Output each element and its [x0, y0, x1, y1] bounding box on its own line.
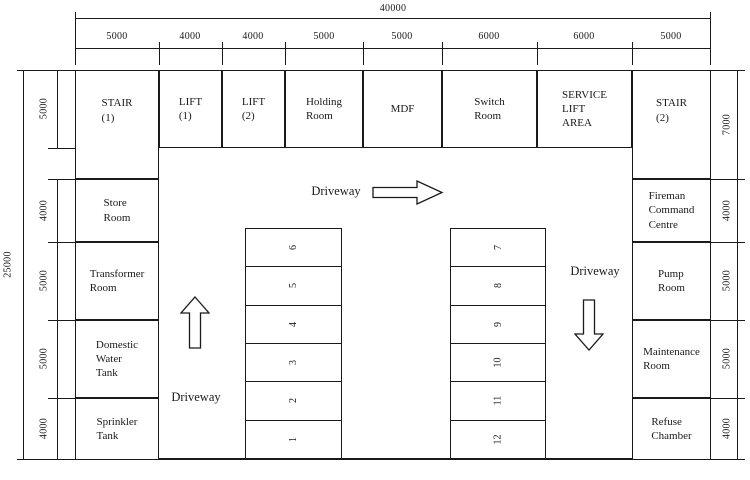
- dim-label-left-1: 5000: [39, 87, 52, 131]
- dim-label-top-1: 5000: [97, 31, 137, 42]
- stall-number: 5: [288, 283, 299, 288]
- dim-tick: [537, 42, 538, 65]
- room-holding: Holding Room: [285, 70, 363, 148]
- dim-tick: [711, 459, 745, 460]
- dim-tick: [75, 12, 76, 65]
- dim-label-right-2: 4000: [722, 189, 735, 233]
- dim-overall-height: 25000: [3, 243, 16, 287]
- dim-tick: [711, 179, 745, 180]
- dim-tick: [285, 42, 286, 65]
- dim-line-left-segments: [57, 70, 58, 148]
- dim-label-left-4: 5000: [39, 337, 52, 381]
- parking-stall-10: 10: [451, 344, 545, 382]
- room-label: Switch Room: [474, 95, 505, 124]
- dim-tick: [48, 320, 77, 321]
- dim-label-top-5: 5000: [382, 31, 422, 42]
- room-lift-1: LIFT (1): [159, 70, 222, 148]
- room-service-lift-area: SERVICE LIFT AREA: [537, 70, 632, 148]
- dim-tick: [17, 459, 77, 460]
- stall-number: 9: [493, 322, 504, 327]
- room-mdf: MDF: [363, 70, 442, 148]
- room-switch: Switch Room: [442, 70, 537, 148]
- driveway-arrow-up-icon: [180, 296, 210, 349]
- dim-tick: [48, 242, 77, 243]
- parking-stall-7: 7: [451, 229, 545, 267]
- dim-label-left-3: 5000: [39, 259, 52, 303]
- dim-label-left-5: 4000: [39, 407, 52, 451]
- dim-tick: [711, 320, 745, 321]
- room-stair-1: STAIR (1): [75, 70, 159, 179]
- room-label: SERVICE LIFT AREA: [562, 88, 607, 131]
- stall-number: 7: [493, 245, 504, 250]
- driveway-label-left: Driveway: [165, 390, 227, 405]
- parking-stall-6: 6: [246, 229, 341, 267]
- room-lift-2: LIFT (2): [222, 70, 285, 148]
- dim-tick: [442, 42, 443, 65]
- dim-line-overall-left: [23, 70, 24, 460]
- room-refuse-chamber: Refuse Chamber: [632, 398, 711, 460]
- dim-overall-width: 40000: [363, 3, 423, 14]
- driveway-arrow-right-icon: [372, 180, 444, 205]
- floor-plan: 40000 5000 4000 4000 5000 5000 6000 6000…: [0, 0, 750, 480]
- dim-label-left-2: 4000: [39, 189, 52, 233]
- stall-number: 1: [288, 437, 299, 442]
- stall-number: 12: [493, 434, 504, 444]
- room-stair-2: STAIR (2): [632, 70, 711, 179]
- dim-label-top-2: 4000: [170, 31, 210, 42]
- stall-number: 3: [288, 360, 299, 365]
- room-label: LIFT (2): [242, 95, 265, 124]
- dim-label-top-6: 6000: [469, 31, 509, 42]
- room-fireman-command-centre: Fireman Command Centre: [632, 179, 711, 242]
- room-label: STAIR (2): [656, 96, 687, 125]
- room-label: Fireman Command Centre: [649, 189, 695, 232]
- parking-stall-5: 5: [246, 267, 341, 305]
- dim-tick: [159, 42, 160, 65]
- room-label: STAIR (1): [102, 96, 133, 125]
- dim-label-top-4: 5000: [304, 31, 344, 42]
- room-sprinkler-tank: Sprinkler Tank: [75, 398, 159, 460]
- dim-label-right-1: 7000: [722, 103, 735, 147]
- dim-line-overall-top: [75, 18, 711, 19]
- stall-number: 6: [288, 245, 299, 250]
- dim-tick: [363, 42, 364, 65]
- driveway-label-right: Driveway: [564, 264, 626, 279]
- room-store: Store Room: [75, 179, 159, 242]
- stall-number: 4: [288, 322, 299, 327]
- dim-label-top-8: 5000: [651, 31, 691, 42]
- room-transformer: Transformer Room: [75, 242, 159, 320]
- parking-stall-4: 4: [246, 306, 341, 344]
- parking-stall-1: 1: [246, 421, 341, 458]
- parking-stall-8: 8: [451, 267, 545, 305]
- parking-stall-3: 3: [246, 344, 341, 382]
- stall-number: 2: [288, 398, 299, 403]
- dim-tick: [711, 242, 745, 243]
- room-pump: Pump Room: [632, 242, 711, 320]
- room-label: Domestic Water Tank: [96, 338, 138, 381]
- stall-number: 11: [492, 396, 503, 406]
- dim-tick: [711, 70, 745, 71]
- dim-tick: [632, 42, 633, 65]
- stall-number: 8: [493, 283, 504, 288]
- dim-tick: [48, 398, 77, 399]
- dim-tick: [48, 179, 77, 180]
- driveway-label-top: Driveway: [305, 184, 367, 199]
- room-maintenance: Maintenance Room: [632, 320, 711, 398]
- parking-block-left: 6 5 4 3 2 1: [245, 228, 342, 459]
- dim-label-right-3: 5000: [722, 259, 735, 303]
- room-domestic-water-tank: Domestic Water Tank: [75, 320, 159, 398]
- room-label: Refuse Chamber: [651, 415, 691, 444]
- dim-label-top-7: 6000: [564, 31, 604, 42]
- dim-tick: [48, 148, 77, 149]
- room-label: Maintenance Room: [643, 345, 700, 374]
- dim-line-right-segments: [737, 70, 738, 460]
- dim-tick: [17, 70, 77, 71]
- stall-number: 10: [493, 358, 504, 368]
- dim-tick: [710, 12, 711, 65]
- dim-label-top-3: 4000: [233, 31, 273, 42]
- dim-label-right-4: 5000: [722, 337, 735, 381]
- room-label: MDF: [391, 102, 415, 116]
- room-label: Holding Room: [306, 95, 342, 124]
- room-label: Sprinkler Tank: [97, 415, 138, 444]
- room-label: Store Room: [104, 196, 131, 225]
- parking-stall-11: 11: [451, 382, 545, 420]
- dim-line-top-segments: [75, 48, 711, 49]
- dim-label-right-5: 4000: [722, 407, 735, 451]
- parking-block-right: 7 8 9 10 11 12: [450, 228, 546, 459]
- parking-stall-2: 2: [246, 382, 341, 420]
- driveway-arrow-down-icon: [574, 299, 604, 351]
- room-label: LIFT (1): [179, 95, 202, 124]
- parking-stall-9: 9: [451, 306, 545, 344]
- room-label: Pump Room: [658, 267, 685, 296]
- parking-stall-12: 12: [451, 421, 545, 458]
- room-label: Transformer Room: [90, 267, 145, 296]
- dim-tick: [711, 398, 745, 399]
- dim-tick: [222, 42, 223, 65]
